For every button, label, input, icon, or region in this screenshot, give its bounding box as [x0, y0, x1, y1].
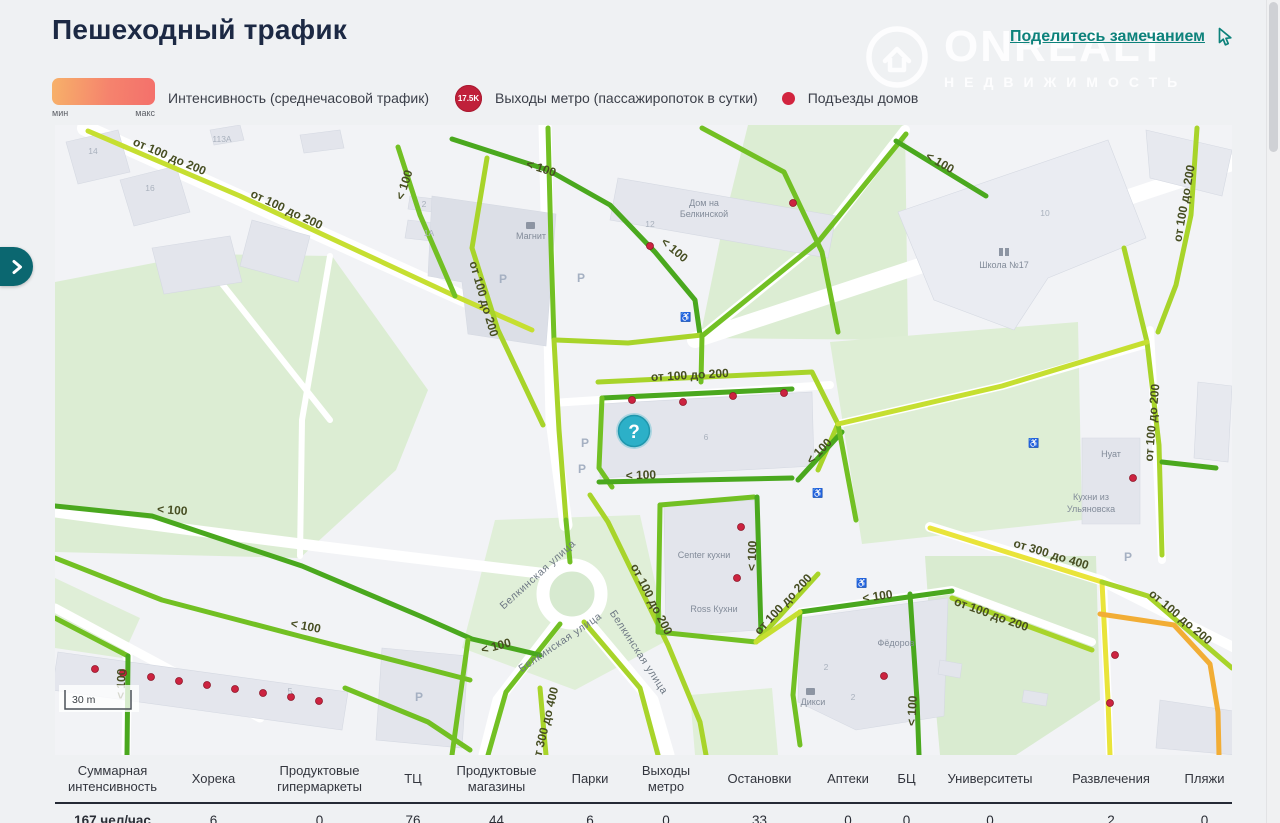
- place-label: Дикси: [801, 697, 826, 707]
- page-title: Пешеходный трафик: [52, 14, 347, 46]
- place-label: Школа №17: [979, 260, 1029, 270]
- stat-header: Выходы метро: [631, 756, 701, 802]
- house-number: 2: [824, 662, 829, 672]
- traffic-label: < 100: [904, 695, 920, 726]
- scale-bar: 30 m: [59, 685, 139, 712]
- stat-header: Остановки: [728, 756, 792, 802]
- stat-value: 0: [316, 813, 324, 823]
- brand-subtitle: НЕДВИЖИМОСТЬ: [944, 74, 1187, 90]
- house-number: 113А: [212, 134, 232, 144]
- intensity-gradient: мин макс: [52, 78, 155, 118]
- parking-icon: P: [1124, 550, 1132, 564]
- place-label: Магнит: [516, 231, 546, 241]
- house-number: 14: [88, 146, 98, 156]
- place-label: Фёдоров: [878, 638, 915, 648]
- share-feedback-link[interactable]: Поделитесь замечанием: [1010, 26, 1234, 48]
- open-panel-button[interactable]: [0, 247, 33, 286]
- stat-header: Аптеки: [827, 756, 869, 802]
- intensity-label: Интенсивность (среднечасовой трафик): [168, 90, 429, 106]
- parking-icon: P: [578, 462, 586, 476]
- stat-value: 6: [586, 813, 594, 823]
- scrollbar-track[interactable]: [1266, 0, 1280, 823]
- house-number: 10: [1040, 208, 1050, 218]
- school-icon: [1005, 248, 1009, 256]
- intensity-gradient-swatch: [52, 78, 155, 105]
- place-label: Нуат: [1101, 449, 1121, 459]
- stats-table: Суммарная интенсивность Хорека Продуктов…: [55, 756, 1232, 823]
- stat-header: Продуктовые гипермаркеты: [257, 756, 382, 802]
- stat-header: БЦ: [897, 756, 915, 802]
- house-number: 2: [851, 692, 856, 702]
- stat-value: 0: [662, 813, 670, 823]
- stat-value: 33: [752, 813, 767, 823]
- stat-header: Парки: [572, 756, 609, 802]
- school-icon: [999, 248, 1003, 256]
- stat-value: 6: [210, 813, 218, 823]
- chevron-right-icon: [8, 258, 26, 276]
- help-marker[interactable]: ?: [616, 413, 652, 449]
- place-label: Ульяновска: [1067, 504, 1115, 514]
- metro-badge-icon: 17.5K: [455, 85, 482, 112]
- stat-value: 2: [1107, 813, 1115, 823]
- entrance-dot-icon: [782, 92, 795, 105]
- stat-value: 0: [986, 813, 994, 823]
- store-icon: [526, 222, 535, 229]
- gradient-min-label: мин: [52, 108, 68, 118]
- place-label: Дом на: [689, 198, 719, 208]
- stat-value: 76: [405, 813, 420, 823]
- stat-value: 0: [844, 813, 852, 823]
- stat-value: 44: [489, 813, 504, 823]
- share-feedback-label: Поделитесь замечанием: [1010, 28, 1205, 46]
- stat-header: Развлечения: [1072, 756, 1150, 802]
- svg-text:♿: ♿: [680, 311, 691, 322]
- parking-icon: P: [499, 272, 507, 286]
- house-number: 2: [422, 199, 427, 209]
- help-marker-glyph: ?: [628, 422, 640, 443]
- house-number: 5: [288, 686, 293, 696]
- stat-header: Суммарная интенсивность: [55, 756, 170, 802]
- stat-value: 0: [1201, 813, 1209, 823]
- scale-label: 30 m: [72, 694, 96, 706]
- house-number: 6: [704, 432, 709, 442]
- traffic-label: < 100: [744, 540, 759, 571]
- svg-text:♿: ♿: [1028, 437, 1039, 448]
- svg-text:♿: ♿: [812, 487, 823, 498]
- stat-value: 0: [903, 813, 911, 823]
- house-number: 12: [645, 219, 655, 229]
- gradient-max-label: макс: [135, 108, 155, 118]
- cursor-icon: [1212, 26, 1234, 48]
- stat-value: 167 чел/час: [74, 813, 151, 823]
- stat-header: ТЦ: [404, 756, 422, 802]
- place-label: Center кухни: [678, 550, 731, 560]
- traffic-label: < 100: [157, 502, 189, 518]
- map-legend: мин макс Интенсивность (среднечасовой тр…: [52, 78, 918, 118]
- traffic-label: < 100: [625, 467, 656, 482]
- pedestrian-traffic-page: ONREALT НЕДВИЖИМОСТЬ Пешеходный трафик П…: [0, 0, 1280, 823]
- parking-icon: P: [581, 436, 589, 450]
- stat-header: Продуктовые магазины: [444, 756, 549, 802]
- store-icon: [806, 688, 815, 695]
- parking-icon: P: [577, 271, 585, 285]
- parking-icon: P: [415, 690, 423, 704]
- house-number: 1А: [424, 228, 435, 238]
- scrollbar-thumb[interactable]: [1269, 2, 1278, 152]
- stat-header: Университеты: [947, 756, 1032, 802]
- place-label: Белкинской: [680, 209, 728, 219]
- stats-value-row: 167 чел/час 6 0 76 44 6 0 33 0 0 0 2 0: [55, 804, 1232, 823]
- entrances-label: Подъезды домов: [808, 90, 919, 106]
- stats-header-row: Суммарная интенсивность Хорека Продуктов…: [55, 756, 1232, 802]
- svg-text:♿: ♿: [856, 577, 867, 588]
- stat-header: Хорека: [192, 756, 235, 802]
- house-number: 16: [145, 183, 155, 193]
- traffic-map[interactable]: ♿ ♿ ♿ ♿ Белкинская улица Белкинская улиц…: [55, 125, 1232, 755]
- stat-header: Пляжи: [1185, 756, 1225, 802]
- metro-label: Выходы метро (пассажиропоток в сутки): [495, 90, 758, 106]
- place-label: Ross Кухни: [690, 604, 737, 614]
- place-label: Кухни из: [1073, 492, 1109, 502]
